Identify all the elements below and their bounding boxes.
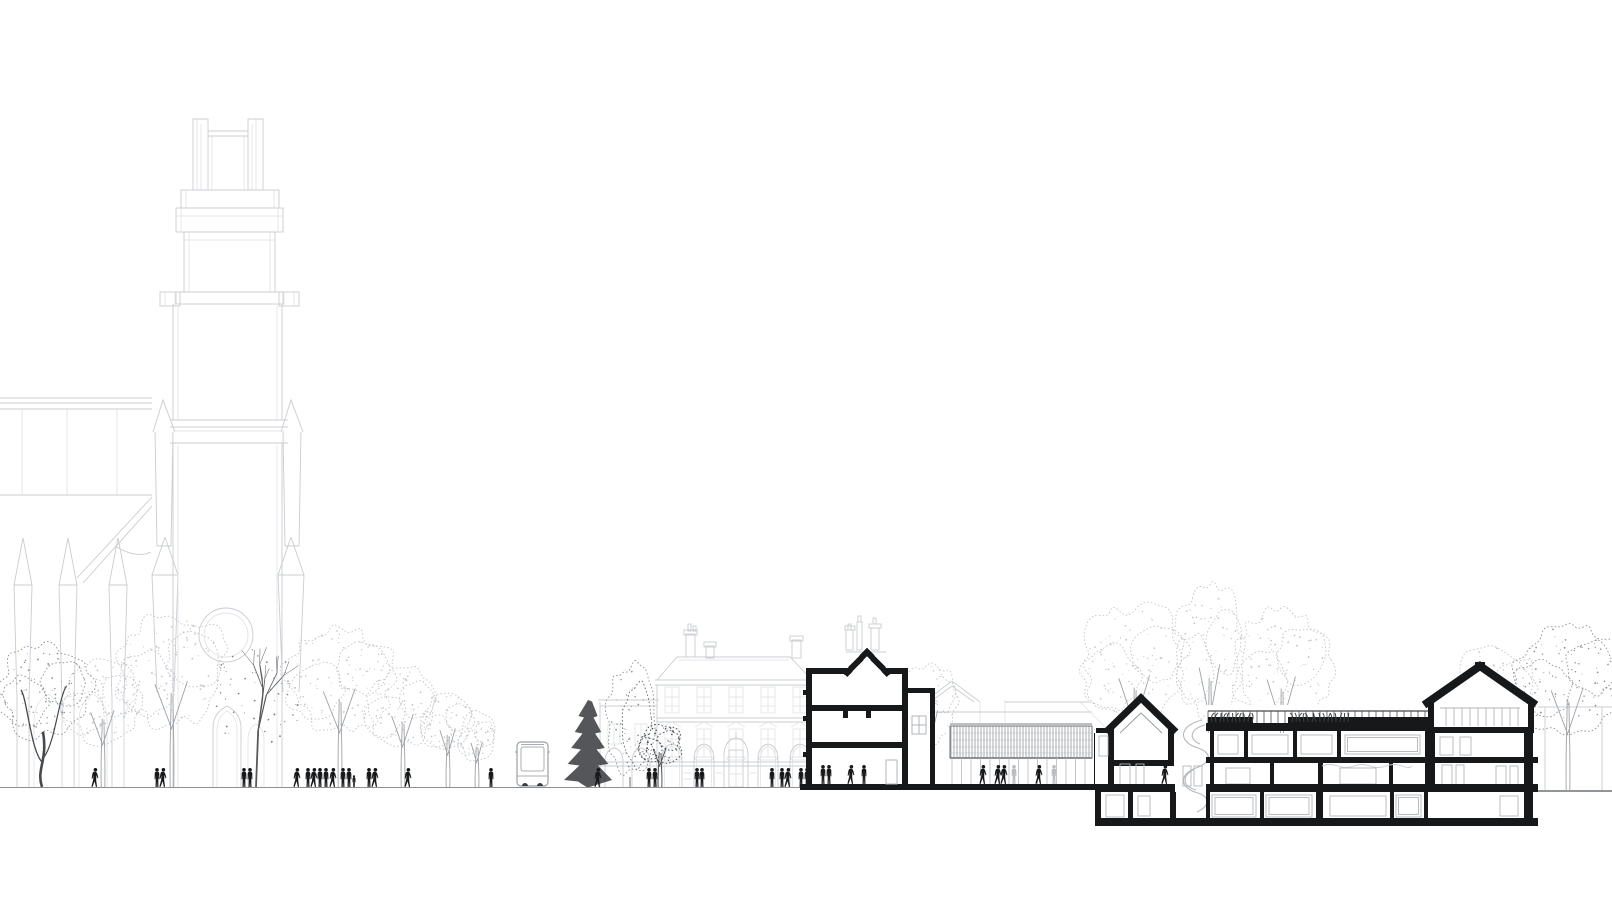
pedestrian	[367, 768, 372, 787]
glazed-pavilion	[938, 722, 1106, 790]
pedestrian	[770, 768, 775, 787]
pedestrian	[404, 768, 411, 787]
tree	[116, 615, 228, 787]
tree	[0, 642, 96, 787]
pedestrian	[91, 768, 98, 787]
pedestrian	[371, 768, 378, 787]
pedestrian	[341, 768, 346, 787]
pedestrian	[780, 768, 785, 787]
pedestrian	[353, 775, 356, 787]
trees-foreground	[0, 615, 682, 787]
pedestrian	[700, 768, 705, 787]
classical-palace-elevation	[598, 624, 814, 787]
pedestrian	[306, 768, 311, 787]
cathedral-elevation	[0, 119, 304, 788]
pedestrian	[329, 768, 336, 787]
pedestrian	[695, 768, 700, 787]
pedestrian	[242, 768, 247, 787]
pedestrian	[159, 768, 166, 787]
pedestrian	[318, 768, 323, 787]
pedestrian	[155, 768, 160, 787]
architectural-elevation-drawing	[0, 0, 1612, 901]
new-building-section	[1095, 662, 1538, 826]
tree	[60, 659, 142, 787]
tree	[564, 700, 612, 787]
drawing-canvas	[0, 0, 1612, 901]
pedestrian	[293, 768, 300, 787]
pedestrian	[347, 768, 352, 787]
tree	[638, 724, 681, 787]
city-bus	[515, 742, 550, 786]
pedestrian	[489, 768, 494, 787]
sectioned-townhouse	[800, 650, 940, 790]
pedestrian	[647, 768, 652, 787]
pedestrian	[310, 768, 317, 787]
pedestrian	[324, 768, 329, 787]
palace-second-floor-windows	[665, 687, 807, 713]
tree	[420, 693, 474, 787]
tree	[216, 647, 299, 787]
